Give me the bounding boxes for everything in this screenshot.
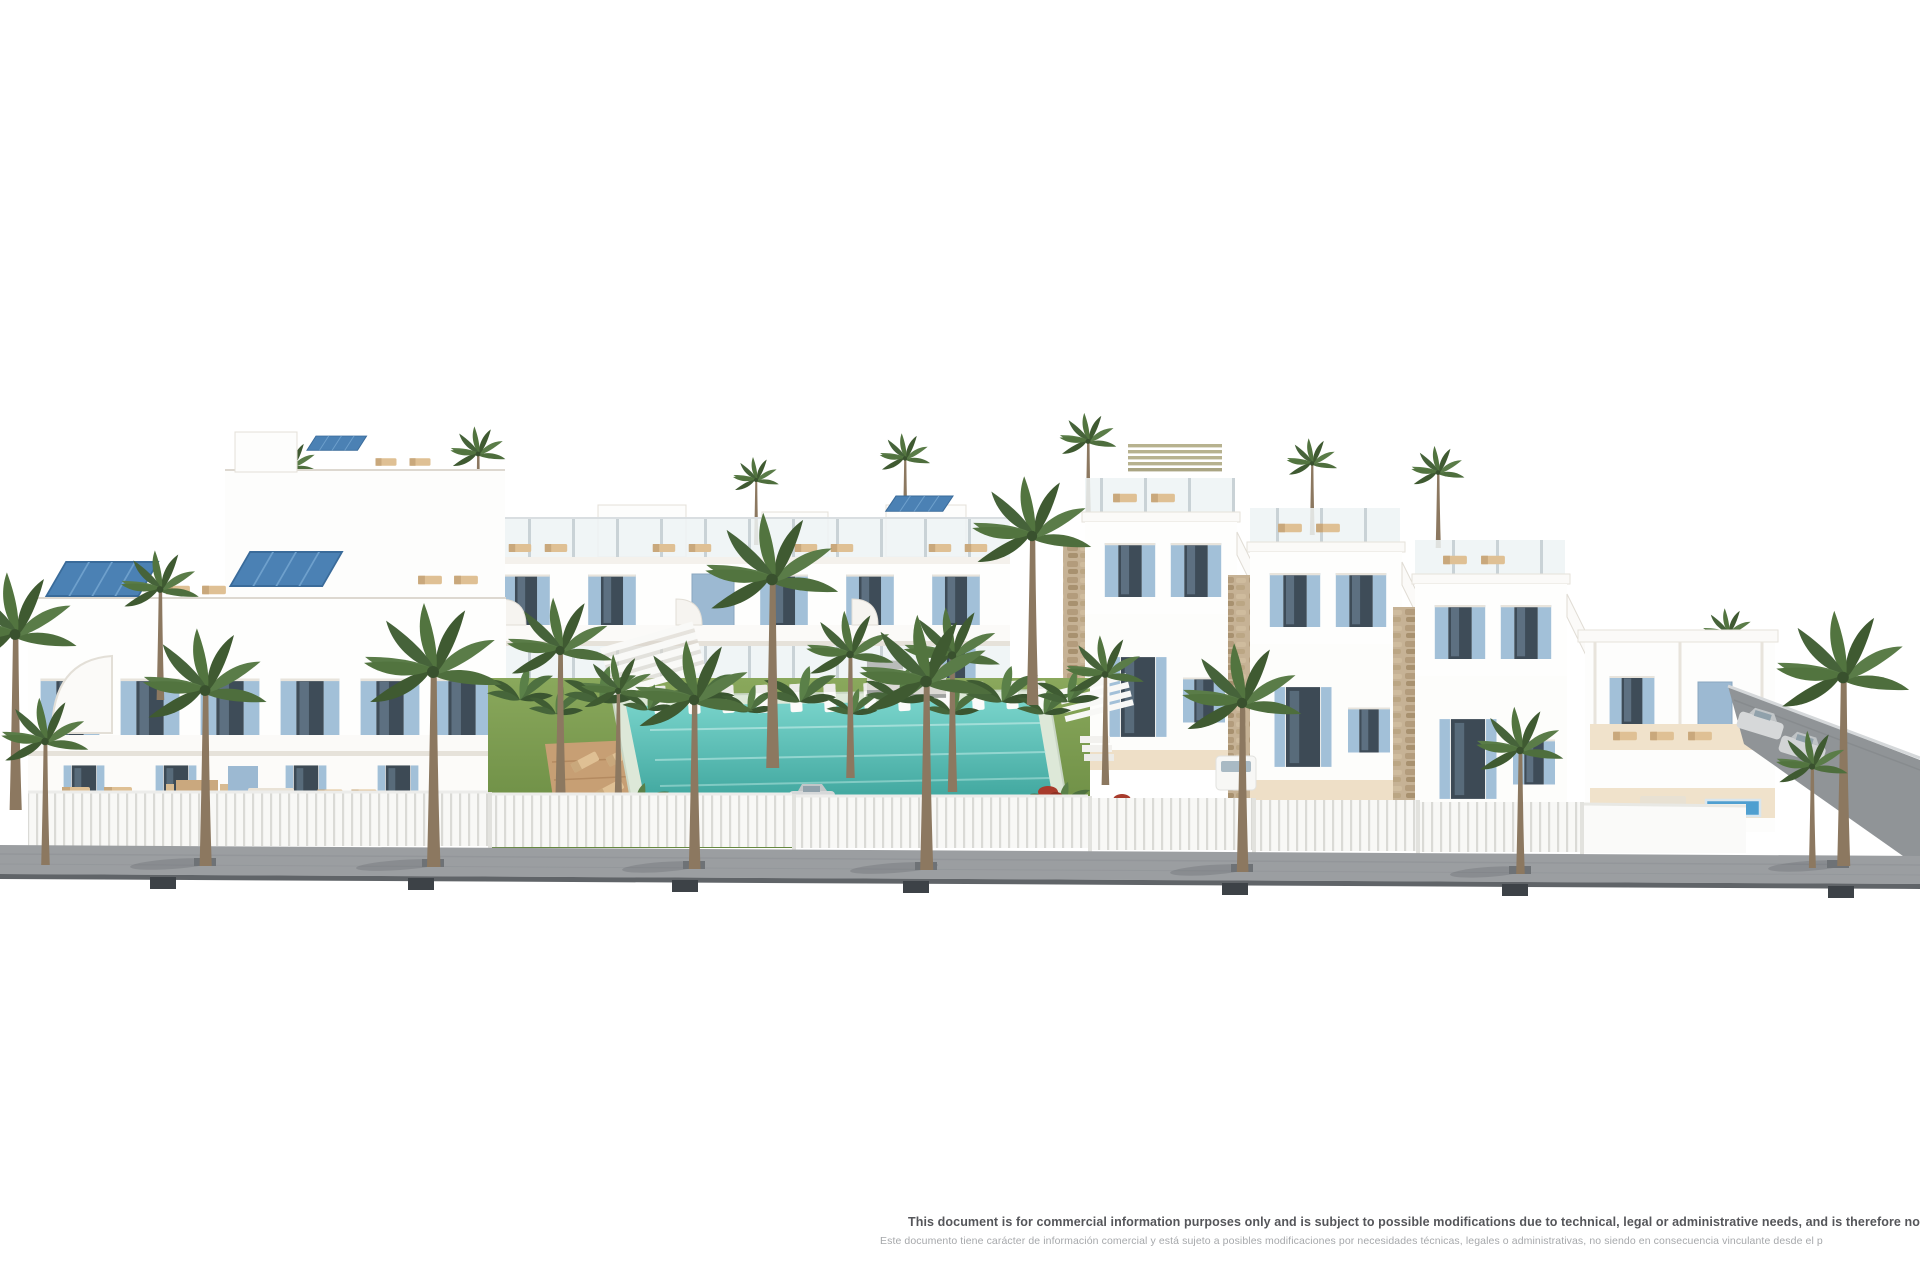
roof-pergola	[1128, 444, 1222, 471]
right-villa-3	[1393, 540, 1613, 832]
white-van	[1216, 756, 1256, 790]
architectural-render	[0, 0, 1920, 1280]
render-page: This document is for commercial informat…	[0, 0, 1920, 1280]
disclaimer-text-english: This document is for commercial informat…	[908, 1215, 1920, 1229]
disclaimer-text-spanish: Este documento tiene carácter de informa…	[880, 1235, 1823, 1247]
